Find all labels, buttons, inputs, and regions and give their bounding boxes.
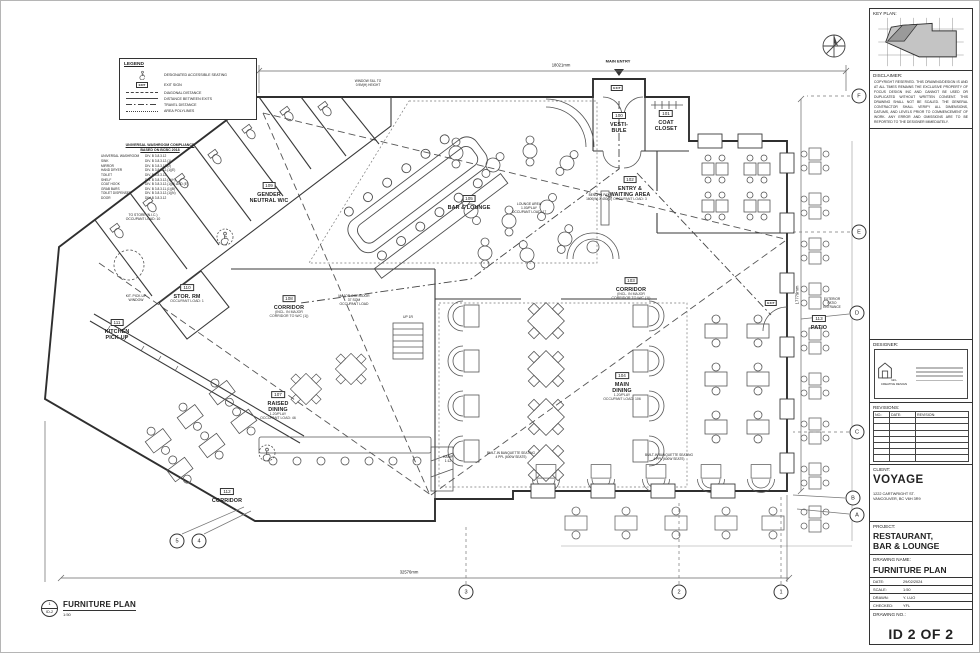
dimension-label-1: 32576mm [400,570,419,575]
room-occupancy-note: 1.20/PLAY OCCUPANT LOAD: 46 [260,413,296,421]
field-label: SCALE: [873,587,903,592]
room-name: CORRIDOR [212,498,242,504]
room-label-104: 104MAIN DINING1.20/PLAY OCCUPANT LOAD: 1… [603,364,641,402]
solid-line-symbol [126,98,158,99]
room-tag: 100 [612,112,626,119]
plan-note-10: BUILT-IN BANQUETTE SEATING 4 PPL (600W S… [645,454,693,462]
grid-bubble-1: 1 [774,585,789,600]
room-label-110: 110STOR. RMOCCUPANT LOAD: 1 [170,276,204,304]
revision-empty-cell [874,455,890,461]
compliance-row-9: DOORDIV. B 3.8.3.12 [101,196,219,201]
client-section: CLIENT: VOYAGE 1222 CARTWRIGHT ST. VANCO… [870,465,972,522]
room-label-113: 113PATIO [811,307,827,331]
dotted-icon [124,111,160,112]
field-label: DRAWN: [873,595,903,600]
room-label-107: 107RAISED DINING1.20/PLAY OCCUPANT LOAD:… [260,383,296,421]
dimension-label-2: 17779mm [795,286,800,305]
room-label-101: 101COAT CLOSET [655,102,677,132]
legend-item-label: EXIT SIGN [164,83,182,87]
legend-item-1: EXITEXIT SIGN [124,82,252,88]
room-occupancy-note: OCCUPANT LOAD: 1 [170,300,204,304]
field-row-0: DATE:29/02/2024 [870,578,972,586]
legend-box: LEGEND DESIGNATED ACCESSIBLE SEATINGEXIT… [119,58,257,120]
plan-note-2: MAJOR CORRIDOR 37 SQM OCCUPANT LOAD [338,294,369,306]
grid-bubble-C: C [850,425,865,440]
dashdot-icon [124,104,160,105]
field-value: YFL [903,603,910,608]
grid-bubble-E: E [852,225,867,240]
legend-item-0: DESIGNATED ACCESSIBLE SEATING [124,69,252,80]
grid-bubble-F: F [852,89,867,104]
legend-item-label: AREA POLYLINES [164,109,194,113]
room-tag: 111 [111,319,124,326]
plan-note-8: BENCH 4 PAX 1600(W) X 450(D) [586,194,612,202]
room-label-105: 105BAR & LOUNGE [448,187,491,211]
compliance-title-line1: UNIVERSAL WASHROOM COMPLIANCE [126,143,195,147]
room-tag: 107 [271,391,285,398]
wheelchair-icon [124,69,160,80]
disclaimer-section: DISCLAIMER: COPYRIGHT RESERVED. THIS DRA… [870,71,972,129]
field-value: Y. LUO [903,595,915,600]
drawing-number: ID 2 OF 2 [873,626,969,642]
room-tag: 104 [615,372,629,379]
field-label: DATE: [873,579,903,584]
solid-icon [124,98,160,99]
compliance-notes: UNIVERSAL WASHROOM COMPLIANCE BASED ON B… [101,143,219,201]
room-name: PATIO [811,325,827,331]
plan-note-4: UP 1R [403,315,413,319]
compliance-code: DIV. B 3.8.3.12 [145,196,166,201]
exit-sign-symbol: EXIT [136,82,149,88]
keyplan-thumbnail [873,16,969,68]
field-row-1: SCALE:1:50 [870,586,972,594]
revisions-section: REVISIONS: NO.:DATE:REVISION: [870,403,972,465]
view-number-bubble: 1 ID-2 [41,600,58,617]
plan-note-3: KIT. PICK-UP WINDOW [126,294,147,302]
project-label: PROJECT: [873,524,969,529]
room-tag: 112 [220,488,233,495]
room-tag: 110 [180,284,193,291]
room-label-111: 111KITCHEN PICK-UP [105,311,130,341]
room-name: KITCHEN PICK-UP [105,329,130,341]
designer-contact-text [911,364,965,383]
dashed-icon [124,92,160,93]
plan-note-11: TO STORE (N.I.C.) OCCUPANT LOAD: 10 [126,213,161,221]
project-name: RESTAURANT, BAR & LOUNGE [873,531,969,552]
dashed-line-symbol [126,92,158,93]
client-address: 1222 CARTWRIGHT ST. VANCOUVER, BC V6H 3R… [873,492,969,503]
legend-item-5: AREA POLYLINES [124,109,252,113]
field-value: 29/02/2024 [903,579,922,584]
view-title-text: FURNITURE PLAN [63,600,136,611]
dimension-label-0: 18021mm [552,63,571,68]
room-tag: 108 [282,295,296,302]
room-label-108: 108CORRIDOR(INCL. IN MAJOR CORRIDOR TO W… [270,287,309,319]
revisions-label: REVISIONS: [873,405,969,410]
plan-note-1: LOUNGE AREA 1.00/PLAY OCCUPANT LOAD: 17 [512,202,547,214]
grid-bubble-5: 5 [170,534,185,549]
room-occupancy-note: (INCL. IN MAJOR CORRIDOR TO W/C (1)) [270,311,309,319]
room-occupancy-note: OCCUPANT LOAD: 3 [610,198,651,202]
view-sheet-ref: ID-2 [42,609,57,616]
room-occupancy-note: (INCL. IN MAJOR CORRIDOR TO W/C (1)) [612,293,651,301]
grid-bubble-3: 3 [459,585,474,600]
exit-icon: EXIT [124,82,160,88]
field-label: CHECKED: [873,603,903,608]
compliance-item: DOOR [101,196,145,201]
room-name: COAT CLOSET [655,120,677,132]
drawing-name-label: DRAWING NAME: [873,557,969,562]
revision-empty-cell [890,455,916,461]
drawing-name-section: DRAWING NAME: FURNITURE PLAN [870,555,972,578]
view-title: 1 ID-2 FURNITURE PLAN 1:50 [41,600,136,617]
room-occupancy-note: 1.20/PLAY OCCUPANT LOAD: 106 [603,394,641,402]
room-label-103: 103CORRIDOR(INCL. IN MAJOR CORRIDOR TO W… [612,269,651,301]
grid-bubble-A: A [850,508,865,523]
project-section: PROJECT: RESTAURANT, BAR & LOUNGE [870,522,972,555]
room-tag: 102 [623,176,637,183]
grid-bubble-2: 2 [672,585,687,600]
compliance-title-line2: BASED ON BCBC 2018 [140,148,179,152]
grid-bubble-4: 4 [192,534,207,549]
exit-sign-0: EXIT [611,85,623,91]
designer-box: GFL CREATIVE DESIGN [874,349,968,399]
drawing-name: FURNITURE PLAN [873,565,969,575]
designer-name: GFL CREATIVE DESIGN [877,379,911,386]
designer-logo: GFL CREATIVE DESIGN [877,362,911,386]
drawing-sheet: 100VESTI- BULE101COAT CLOSET102ENTRY & W… [0,0,980,653]
plan-note-7: WINDOW SILL TO 0.9M(H) HEIGHT [355,80,382,88]
fields-section: DATE:29/02/2024SCALE:1:50DRAWN:Y. LUOCHE… [870,578,972,610]
designer-section: DESIGNER: GFL CREATIVE DESIGN [870,340,972,403]
plan-note-0: MAIN ENTRY [606,60,631,65]
room-tag: 101 [659,110,673,117]
client-name: VOYAGE [873,474,969,486]
room-tag: 109 [262,182,276,189]
plan-note-6: EXTERIOR PATIO ENTRANCE [823,298,841,310]
disclaimer-text: COPYRIGHT RESERVED. THIS DRAWING/DESIGN … [874,80,968,126]
disclaimer-label: DISCLAIMER: [873,73,969,78]
legend-item-4: TRAVEL DISTANCE [124,103,252,107]
revision-empty-cell [916,455,968,461]
field-row-3: CHECKED:YFL [870,602,972,610]
legend-items: DESIGNATED ACCESSIBLE SEATINGEXITEXIT SI… [124,69,252,113]
legend-item-label: TRAVEL DISTANCE [164,103,196,107]
view-number: 1 [42,601,57,609]
plan-note-9: BUILT-IN BANQUETTE SEATING 4 PPL (600W S… [487,452,535,460]
titleblock-spacer [870,129,972,340]
legend-title: LEGEND [124,62,252,67]
drawing-no-label: DRAWING NO.: [873,612,969,617]
view-scale: 1:50 [63,612,136,617]
legend-item-2: DIAGONAL DISTANCE [124,91,252,95]
room-label-109: 109GENDER NEUTRAL W/C [250,174,289,204]
legend-item-label: DESIGNATED ACCESSIBLE SEATING [164,73,227,77]
field-value: 1:50 [903,587,911,592]
room-name: BAR & LOUNGE [448,205,491,211]
dashdot-line-symbol [126,104,158,105]
grid-bubble-B: B [846,491,861,506]
room-label-100: 100VESTI- BULE [610,104,628,134]
field-row-2: DRAWN:Y. LUO [870,594,972,602]
exit-sign-1: EXIT [765,300,777,306]
grid-bubble-D: D [850,306,865,321]
legend-item-label: DIAGONAL DISTANCE [164,91,201,95]
drawing-no-section: DRAWING NO.: ID 2 OF 2 [870,610,972,644]
room-label-102: 102ENTRY & WAITING AREAOCCUPANT LOAD: 3 [610,168,651,202]
room-label-112: 112CORRIDOR [212,480,242,504]
room-name: VESTI- BULE [610,122,628,134]
plan-note-5: RAMP 1:12 [443,455,453,463]
compliance-title: UNIVERSAL WASHROOM COMPLIANCE BASED ON B… [101,143,219,152]
revisions-table: NO.:DATE:REVISION: [873,411,969,462]
legend-item-3: DISTANCE BETWEEN EXITS [124,97,252,101]
room-name: GENDER NEUTRAL W/C [250,192,289,204]
room-tag: 105 [462,195,476,202]
compliance-rows: UNIVERSAL WASHROOMDIV. B 3.8.3.12SINKDIV… [101,154,219,200]
legend-item-label: DISTANCE BETWEEN EXITS [164,97,212,101]
keyplan-section: KEY PLAN: [870,9,972,71]
dotted-line-symbol [126,111,158,112]
client-label: CLIENT: [873,467,969,472]
designer-label: DESIGNER: [873,342,969,347]
room-tag: 113 [812,315,825,322]
title-block: KEY PLAN: DISCLAIMER: COPYRIGHT RESERVED… [869,8,973,645]
room-tag: 103 [624,277,638,284]
